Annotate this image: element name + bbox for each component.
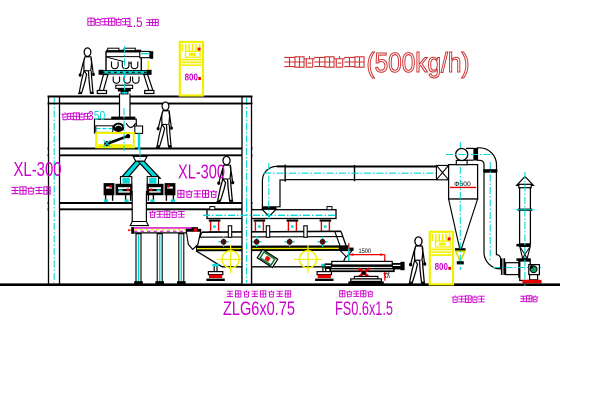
- svg-text:1.5: 1.5: [127, 15, 143, 30]
- svg-text:XL-300: XL-300: [178, 162, 225, 184]
- svg-text:FS0.6x1.5: FS0.6x1.5: [335, 299, 393, 320]
- svg-text:50: 50: [94, 108, 106, 123]
- svg-text:ZLG6x0.75: ZLG6x0.75: [223, 299, 295, 320]
- svg-text:800: 800: [185, 71, 198, 83]
- svg-text:1500: 1500: [359, 248, 372, 255]
- svg-text:3: 3: [88, 108, 94, 123]
- svg-text:XL-300: XL-300: [14, 159, 62, 181]
- svg-text:800: 800: [435, 261, 448, 273]
- svg-text:(500kg/h): (500kg/h): [367, 47, 470, 78]
